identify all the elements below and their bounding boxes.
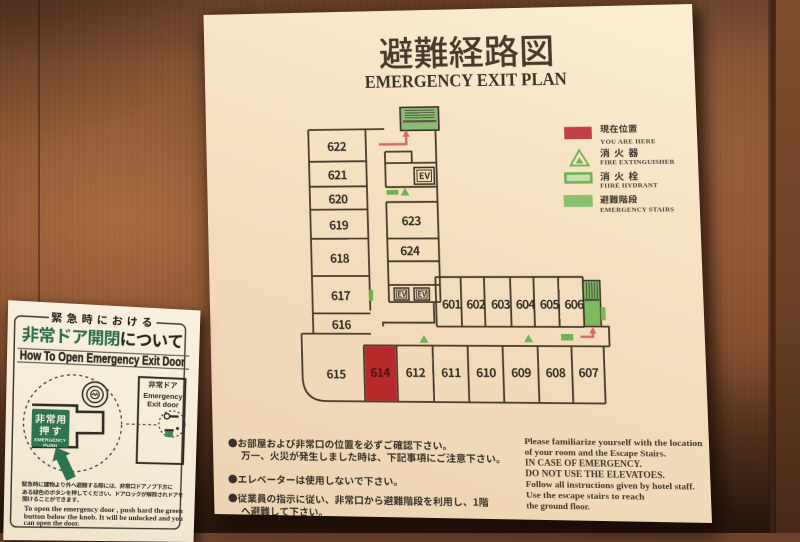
svg-text:PUSH: PUSH [43,443,57,449]
svg-text:Please familiarize yourself wi: Please familiarize yourself with the loc… [524,437,703,449]
svg-text:FIRE EXTINGUISHER: FIRE EXTINGUISHER [600,158,675,166]
svg-text:can open the door.: can open the door. [24,518,80,527]
svg-text:Use the escape stairs to reach: Use the escape stairs to reach [526,490,645,502]
svg-text:EMERGENCY STAIRS: EMERGENCY STAIRS [600,206,675,214]
svg-text:DO NOT USE THE ELEVATOES.: DO NOT USE THE ELEVATOES. [525,468,665,481]
svg-text:Exit door: Exit door [147,400,179,410]
svg-text:EMERGENCY EXIT PLAN: EMERGENCY EXIT PLAN [365,69,568,92]
svg-text:YOU ARE HERE: YOU ARE HERE [600,138,656,146]
svg-text:FIIRE HYDRANT: FIIRE HYDRANT [600,182,659,190]
svg-text:the ground floor.: the ground floor. [526,501,590,512]
